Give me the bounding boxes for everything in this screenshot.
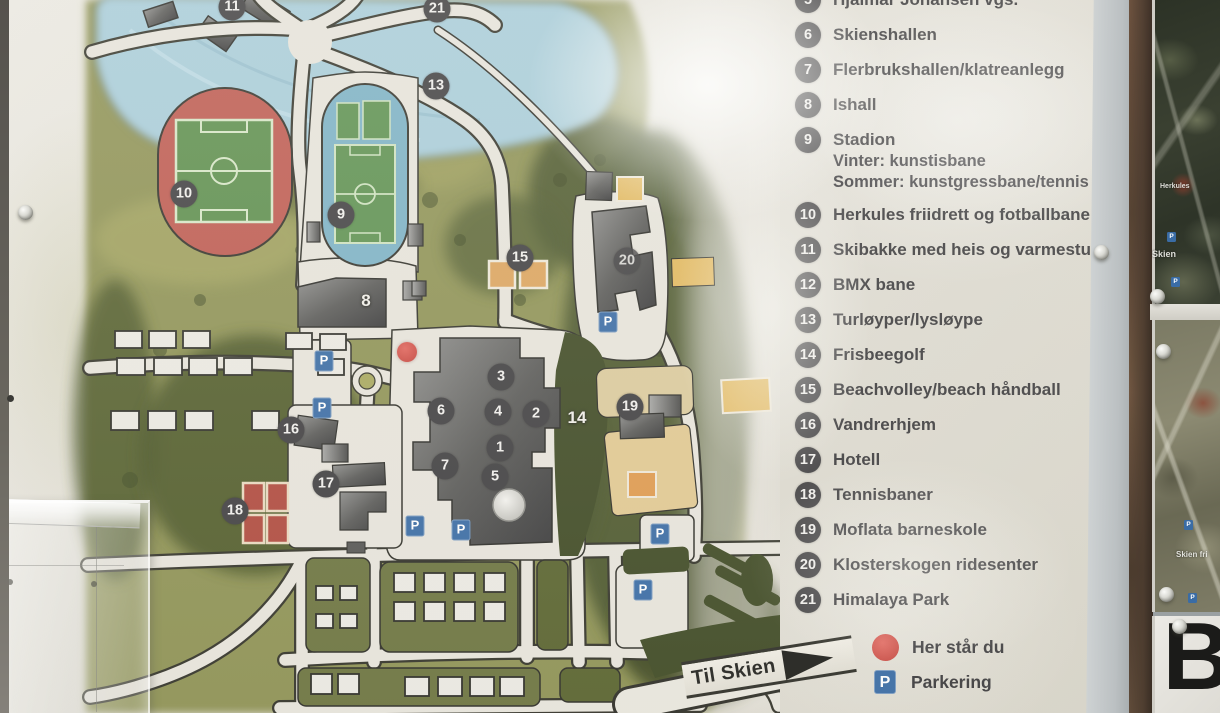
frame-left-edge: [0, 0, 9, 713]
legend-label: Herkules friidrett og fotballbane: [833, 204, 1090, 226]
aerial-photo-panel-top: [1152, 0, 1220, 306]
legend-label: Frisbeegolf: [833, 344, 925, 366]
legend-label: BMX bane: [833, 274, 915, 296]
panel-gap: [1150, 304, 1220, 320]
aerial-parking-dot: P: [1184, 520, 1193, 530]
legend-label: Klosterskogen ridesenter: [833, 554, 1038, 576]
legend-badge: 15: [795, 377, 821, 403]
legend-badge: 12: [795, 272, 821, 298]
bottom-sign-panel: B: [1152, 616, 1220, 713]
legend-item-20: 20Klosterskogen ridesenter: [781, 552, 1095, 578]
legend-item-5: 5Hjalmar Johansen vgs.: [781, 0, 1095, 13]
legend-badge: 18: [795, 482, 821, 508]
screw: [1150, 289, 1165, 304]
legend-badge: 9: [795, 127, 821, 153]
legend-badge: 10: [795, 202, 821, 228]
parking-icon: P: [874, 670, 896, 694]
legend-label: Skibakke med heis og varmestue: [833, 239, 1100, 261]
legend-you-are-here: Her står du: [872, 634, 1004, 661]
legend-subline: Vinter: kunstisbane: [833, 151, 1089, 172]
legend-item-10: 10Herkules friidrett og fotballbane: [781, 202, 1095, 228]
aerial-parking-dot: P: [1188, 593, 1197, 603]
legend-parking: P Parkering: [872, 670, 1004, 694]
legend-badge: 6: [795, 22, 821, 48]
athletics-track: [158, 88, 292, 256]
legend-label: Hotell: [833, 449, 880, 471]
direction-arrow-icon: [781, 642, 835, 679]
legend-label: Turløyper/lysløype: [833, 309, 983, 331]
legend-badge: 20: [795, 552, 821, 578]
brochure-holder: [0, 500, 150, 713]
legend-badge: 17: [795, 447, 821, 473]
legend-item-21: 21Himalaya Park: [781, 587, 1095, 613]
legend-item-12: 12BMX bane: [781, 272, 1095, 298]
legend-item-17: 17Hotell: [781, 447, 1095, 473]
legend-label: Tennisbaner: [833, 484, 933, 506]
screw: [1094, 245, 1109, 260]
photographed-park-info-sign: 1121131098152036421419175161718PPPPPPP T…: [0, 0, 1220, 713]
brochure-holder-lip: [0, 499, 140, 529]
legend-label: Himalaya Park: [833, 589, 949, 611]
holder-rivet: [91, 581, 97, 587]
legend-label: Vandrerhjem: [833, 414, 936, 436]
legend-badge: 5: [795, 0, 821, 13]
aerial-parking-dot: P: [1171, 277, 1180, 287]
aerial-parking-dot: P: [1167, 232, 1176, 242]
legend-subline: Sommer: kunstgressbane/tennis: [833, 172, 1089, 193]
legend-item-11: 11Skibakke med heis og varmestue: [781, 237, 1095, 263]
legend-badge: 7: [795, 57, 821, 83]
legend-badge: 14: [795, 342, 821, 368]
legend-symbols: Her står du P Parkering: [872, 634, 1004, 694]
legend-badge: 19: [795, 517, 821, 543]
legend-label: Stadion: [833, 129, 1089, 151]
b-letter: B: [1163, 616, 1220, 712]
til-skien-label: Til Skien: [690, 655, 777, 691]
aerial-photo-panel-middle: [1152, 318, 1220, 612]
legend-label: Beachvolley/beach håndball: [833, 379, 1061, 401]
screw: [1156, 344, 1171, 359]
roundabout: [352, 366, 382, 396]
aerial-place-label: Herkules: [1160, 183, 1190, 190]
legend-item-18: 18Tennisbaner: [781, 482, 1095, 508]
aerial-place-label: Skien: [1152, 249, 1176, 259]
legend-item-8: 8Ishall: [781, 92, 1095, 118]
legend-item-13: 13Turløyper/lysløype: [781, 307, 1095, 333]
legend-item-14: 14Frisbeegolf: [781, 342, 1095, 368]
bolt-dot: [7, 395, 14, 402]
legend-badge: 11: [795, 237, 821, 263]
legend-label: Moflata barneskole: [833, 519, 987, 541]
frame-rust-strip: [1129, 0, 1153, 713]
parking-label: Parkering: [911, 672, 992, 693]
legend-item-19: 19Moflata barneskole: [781, 517, 1095, 543]
legend-badge: 16: [795, 412, 821, 438]
stadium: [322, 84, 408, 266]
legend-label: Hjalmar Johansen vgs.: [833, 0, 1018, 11]
legend-list: 5Hjalmar Johansen vgs.6Skienshallen7Fler…: [781, 0, 1095, 613]
school: [596, 365, 698, 516]
legend-item-7: 7Flerbrukshallen/klatreanlegg: [781, 57, 1095, 83]
legend-item-15: 15Beachvolley/beach håndball: [781, 377, 1095, 403]
legend-badge: 13: [795, 307, 821, 333]
legend-badge: 8: [795, 92, 821, 118]
legend-item-6: 6Skienshallen: [781, 22, 1095, 48]
legend-item-9: 9StadionVinter: kunstisbaneSommer: kunst…: [781, 127, 1095, 193]
legend-label: Skienshallen: [833, 24, 937, 46]
legend-item-16: 16Vandrerhjem: [781, 412, 1095, 438]
you-are-here-icon: [872, 634, 899, 661]
aerial-place-label: Skien fri: [1176, 550, 1208, 559]
screw: [18, 205, 33, 220]
legend-label: Flerbrukshallen/klatreanlegg: [833, 59, 1064, 81]
screw: [1172, 619, 1187, 634]
legend-label: Ishall: [833, 94, 876, 116]
you-are-here-label: Her står du: [912, 637, 1004, 658]
legend-badge: 21: [795, 587, 821, 613]
screw: [1159, 587, 1174, 602]
